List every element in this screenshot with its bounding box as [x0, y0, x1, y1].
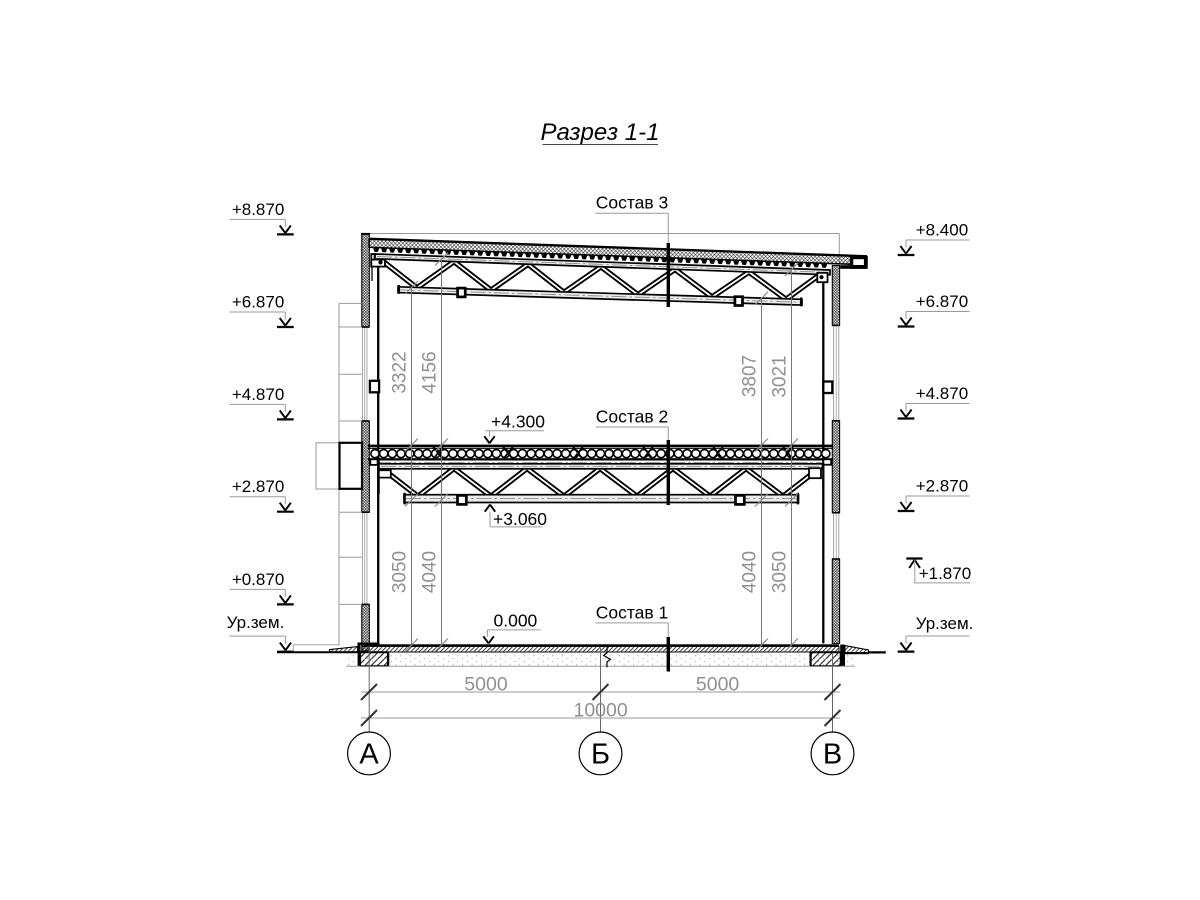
svg-text:3050: 3050 [390, 551, 411, 593]
svg-text:4040: 4040 [420, 551, 441, 593]
svg-text:4156: 4156 [420, 351, 441, 393]
svg-text:+2.870: +2.870 [232, 477, 284, 496]
svg-text:Ур.зем.: Ур.зем. [227, 613, 285, 632]
svg-text:+0.870: +0.870 [232, 570, 284, 589]
svg-text:3050: 3050 [770, 551, 791, 593]
svg-text:Ур.зем.: Ур.зем. [916, 614, 974, 633]
svg-text:Состав 1: Состав 1 [596, 602, 669, 622]
svg-text:3322: 3322 [390, 351, 411, 393]
svg-text:3807: 3807 [740, 355, 761, 397]
svg-text:+8.400: +8.400 [916, 221, 968, 240]
svg-text:5000: 5000 [696, 673, 740, 695]
svg-text:+3.060: +3.060 [493, 509, 547, 529]
svg-text:+2.870: +2.870 [916, 477, 968, 496]
svg-text:5000: 5000 [464, 673, 508, 695]
svg-text:+4.870: +4.870 [916, 384, 968, 403]
svg-text:+4.300: +4.300 [491, 411, 545, 431]
svg-text:Б: Б [591, 739, 610, 771]
svg-text:3021: 3021 [770, 355, 791, 397]
svg-text:+1.870: +1.870 [919, 564, 971, 583]
svg-text:+6.870: +6.870 [232, 293, 284, 312]
svg-text:4040: 4040 [740, 551, 761, 593]
svg-text:А: А [359, 739, 379, 771]
svg-text:+4.870: +4.870 [232, 385, 284, 404]
svg-text:Разрез 1-1: Разрез 1-1 [541, 119, 660, 146]
svg-text:10000: 10000 [573, 699, 627, 721]
svg-text:Состав 2: Состав 2 [596, 407, 669, 427]
svg-text:+6.870: +6.870 [916, 292, 968, 311]
svg-text:+8.870: +8.870 [232, 200, 284, 219]
svg-text:В: В [823, 739, 842, 771]
svg-text:Состав 3: Состав 3 [596, 193, 669, 213]
svg-text:0.000: 0.000 [494, 610, 538, 630]
